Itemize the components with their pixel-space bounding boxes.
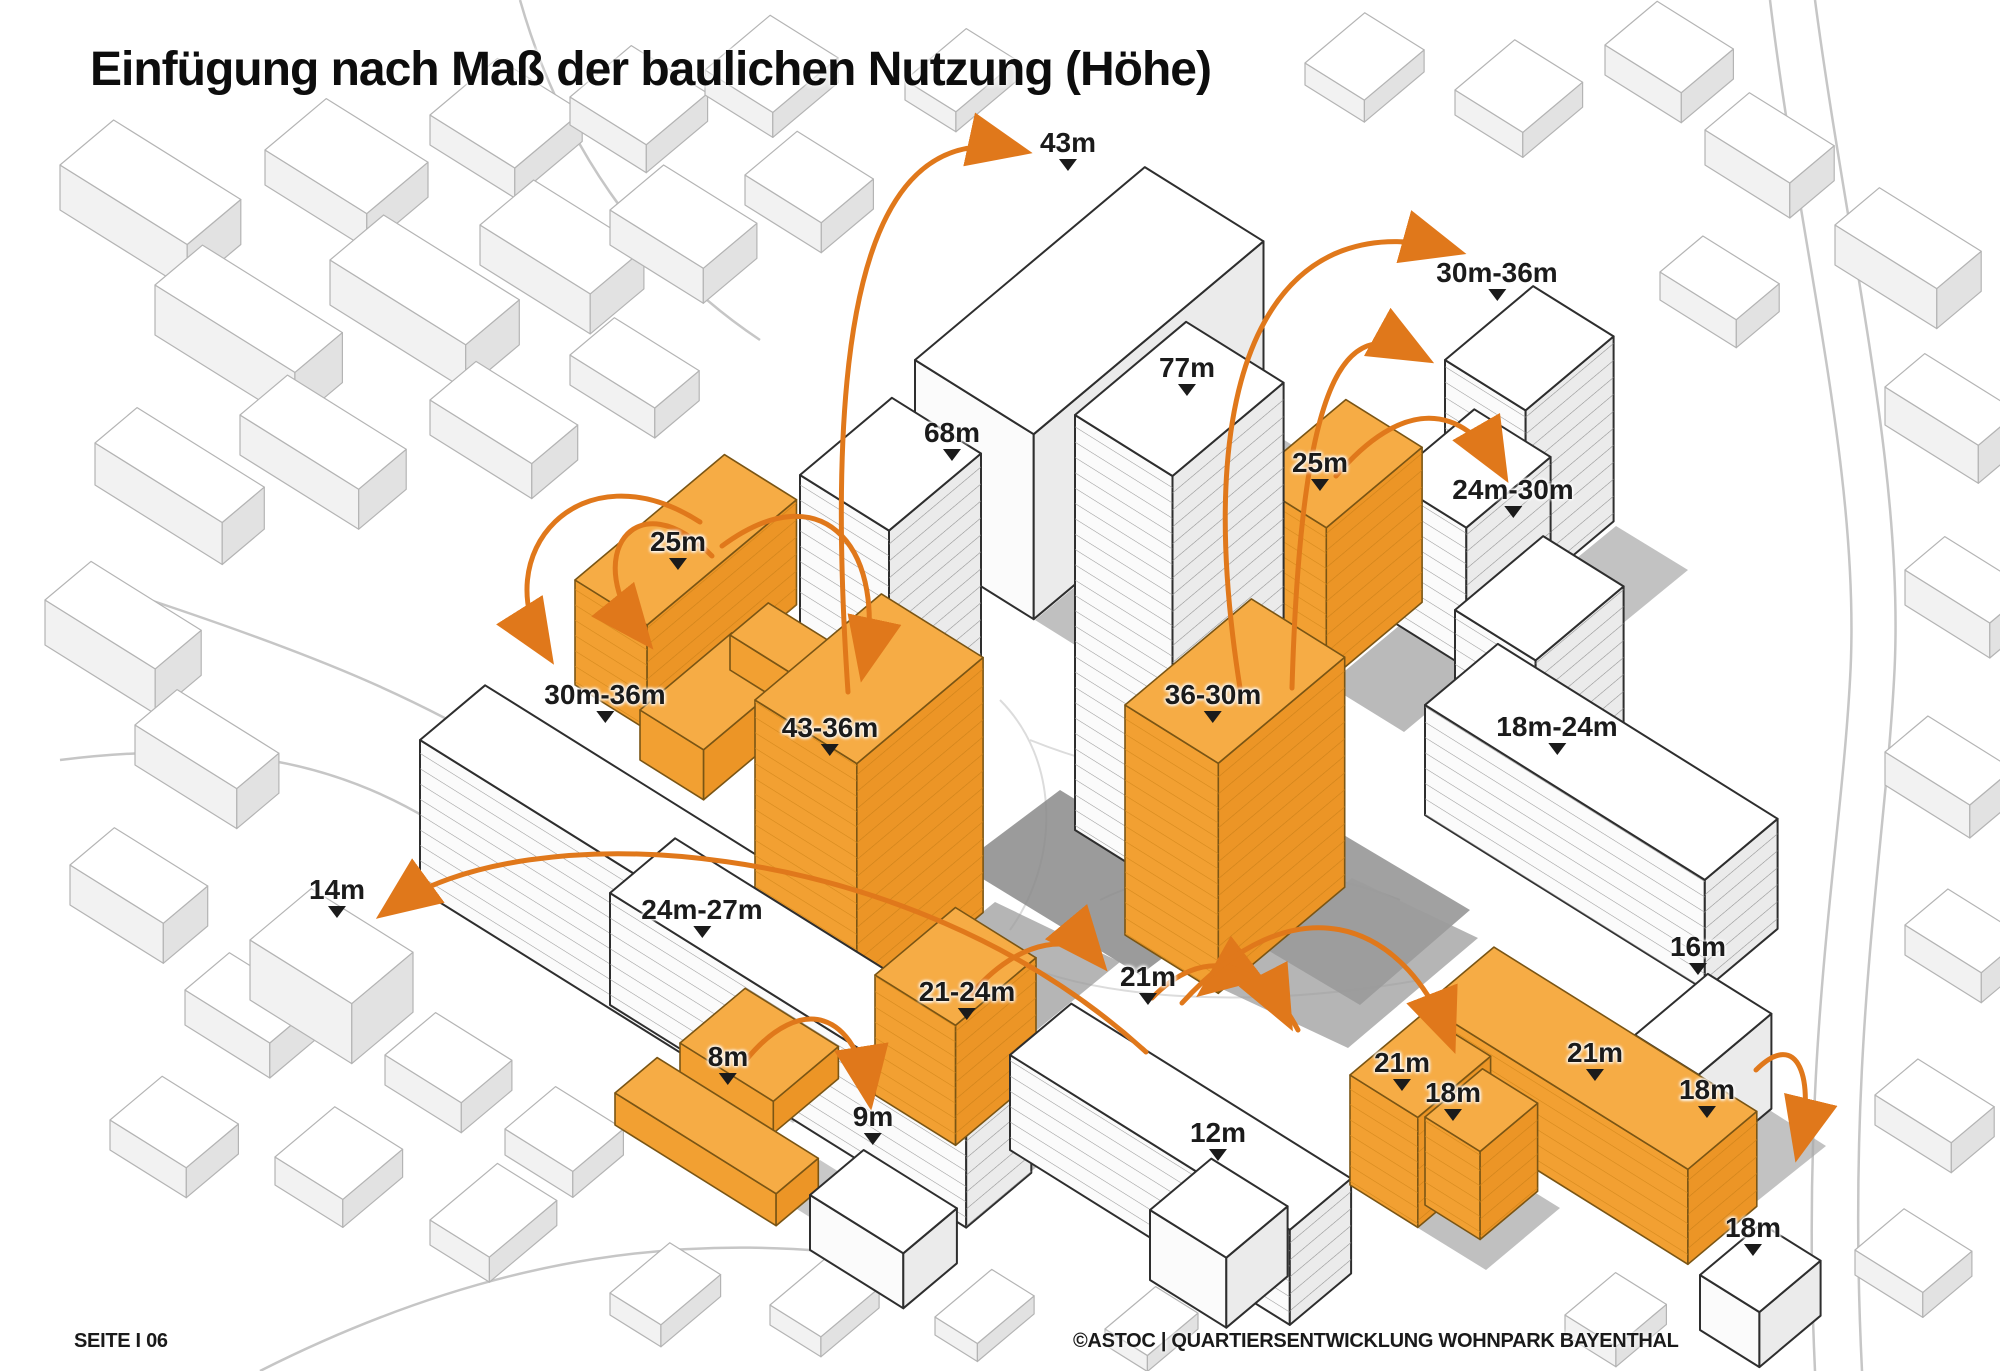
height-label: 25m: [650, 527, 706, 570]
height-label-text: 16m: [1670, 931, 1726, 962]
height-label: 68m: [924, 418, 980, 461]
background-building: [70, 828, 208, 964]
triangle-marker-icon: [943, 449, 961, 461]
background-building: [135, 690, 279, 829]
height-label: 18m: [1725, 1213, 1781, 1256]
credit-line: ©ASTOC | QUARTIERSENTWICKLUNG WOHNPARK B…: [1073, 1330, 1679, 1353]
height-label: 21m: [1120, 962, 1176, 1005]
triangle-marker-icon: [1444, 1109, 1462, 1121]
slide: 43m68m77m30m-36m25m24m-30m25m30m-36m43-3…: [0, 0, 2000, 1371]
page-title: Einfügung nach Maß der baulichen Nutzung…: [90, 42, 1211, 97]
height-label-text: 30m-36m: [1436, 257, 1557, 288]
background-building: [385, 1013, 512, 1133]
height-label-text: 43m: [1040, 127, 1096, 158]
triangle-marker-icon: [1209, 1149, 1227, 1161]
height-label: 14m: [309, 875, 365, 918]
height-label-text: 30m-36m: [544, 679, 665, 710]
height-label-text: 43-36m: [782, 712, 879, 743]
triangle-marker-icon: [864, 1133, 882, 1145]
height-label: 77m: [1159, 353, 1215, 396]
height-label-text: 24m-27m: [641, 894, 762, 925]
background-building: [275, 1107, 403, 1228]
triangle-marker-icon: [1698, 1106, 1716, 1118]
background-building: [265, 99, 428, 249]
height-label: 18m: [1679, 1075, 1735, 1118]
triangle-marker-icon: [1393, 1079, 1411, 1091]
height-label: 24m-27m: [641, 895, 762, 938]
triangle-marker-icon: [1139, 993, 1157, 1005]
background-building: [745, 131, 873, 252]
background-building: [1835, 188, 1981, 329]
triangle-marker-icon: [1548, 743, 1566, 755]
background-building: [1905, 889, 2000, 1003]
background-building: [1605, 1, 1733, 122]
background-building: [935, 1269, 1034, 1361]
height-label: 8m: [708, 1042, 748, 1085]
height-label-text: 21m: [1567, 1037, 1623, 1068]
background-building: [110, 1076, 238, 1197]
height-label-text: 14m: [309, 874, 365, 905]
background-building: [1905, 537, 2000, 658]
background-building: [570, 318, 699, 438]
background-building: [95, 408, 264, 565]
height-label-text: 77m: [1159, 352, 1215, 383]
triangle-marker-icon: [1744, 1244, 1762, 1256]
triangle-marker-icon: [958, 1008, 976, 1020]
triangle-marker-icon: [1059, 159, 1077, 171]
background-building: [1875, 1059, 1994, 1173]
height-label-text: 18m-24m: [1496, 711, 1617, 742]
triangle-marker-icon: [1311, 479, 1329, 491]
background-building: [1455, 40, 1583, 158]
triangle-marker-icon: [693, 926, 711, 938]
background-building: [610, 1243, 721, 1347]
background-building: [1705, 93, 1834, 218]
height-label-text: 21m: [1374, 1047, 1430, 1078]
triangle-marker-icon: [1178, 384, 1196, 396]
background-building: [1305, 13, 1424, 122]
height-label: 16m: [1670, 932, 1726, 975]
background-building: [1660, 236, 1779, 348]
triangle-marker-icon: [1204, 711, 1222, 723]
triangle-marker-icon: [1504, 506, 1522, 518]
height-label: 18m-24m: [1496, 712, 1617, 755]
height-label-text: 24m-30m: [1452, 474, 1573, 505]
height-label-text: 21-24m: [919, 976, 1016, 1007]
height-label-text: 8m: [708, 1041, 748, 1072]
height-label: 9m: [853, 1102, 893, 1145]
triangle-marker-icon: [1586, 1069, 1604, 1081]
height-label: 43-36m: [782, 713, 879, 756]
height-label: 21-24m: [919, 977, 1016, 1020]
triangle-marker-icon: [821, 744, 839, 756]
height-label: 21m: [1567, 1038, 1623, 1081]
height-label-text: 18m: [1679, 1074, 1735, 1105]
background-building: [240, 375, 406, 529]
height-label-text: 36-30m: [1165, 679, 1262, 710]
triangle-marker-icon: [596, 711, 614, 723]
height-label-text: 12m: [1190, 1117, 1246, 1148]
background-building: [1885, 716, 2000, 838]
height-label: 21m: [1374, 1048, 1430, 1091]
page-number: SEITE I 06: [74, 1330, 168, 1353]
height-label-text: 68m: [924, 417, 980, 448]
height-label-text: 18m: [1425, 1077, 1481, 1108]
site-plan-canvas: [0, 0, 2000, 1371]
height-label: 43m: [1040, 128, 1096, 171]
height-label: 30m-36m: [1436, 258, 1557, 301]
height-label-text: 25m: [650, 526, 706, 557]
height-label-text: 9m: [853, 1101, 893, 1132]
background-building: [430, 1163, 557, 1282]
triangle-marker-icon: [719, 1073, 737, 1085]
height-label: 12m: [1190, 1118, 1246, 1161]
height-label: 25m: [1292, 448, 1348, 491]
background-building: [1885, 354, 2000, 484]
height-label-text: 18m: [1725, 1212, 1781, 1243]
height-label-text: 25m: [1292, 447, 1348, 478]
background-building: [430, 361, 578, 498]
height-label-text: 21m: [1120, 961, 1176, 992]
background-building: [1855, 1209, 1972, 1318]
triangle-marker-icon: [669, 558, 687, 570]
height-label: 30m-36m: [544, 680, 665, 723]
height-label: 18m: [1425, 1078, 1481, 1121]
triangle-marker-icon: [1689, 963, 1707, 975]
height-label: 36-30m: [1165, 680, 1262, 723]
triangle-marker-icon: [328, 906, 346, 918]
triangle-marker-icon: [1488, 289, 1506, 301]
height-label: 24m-30m: [1452, 475, 1573, 518]
